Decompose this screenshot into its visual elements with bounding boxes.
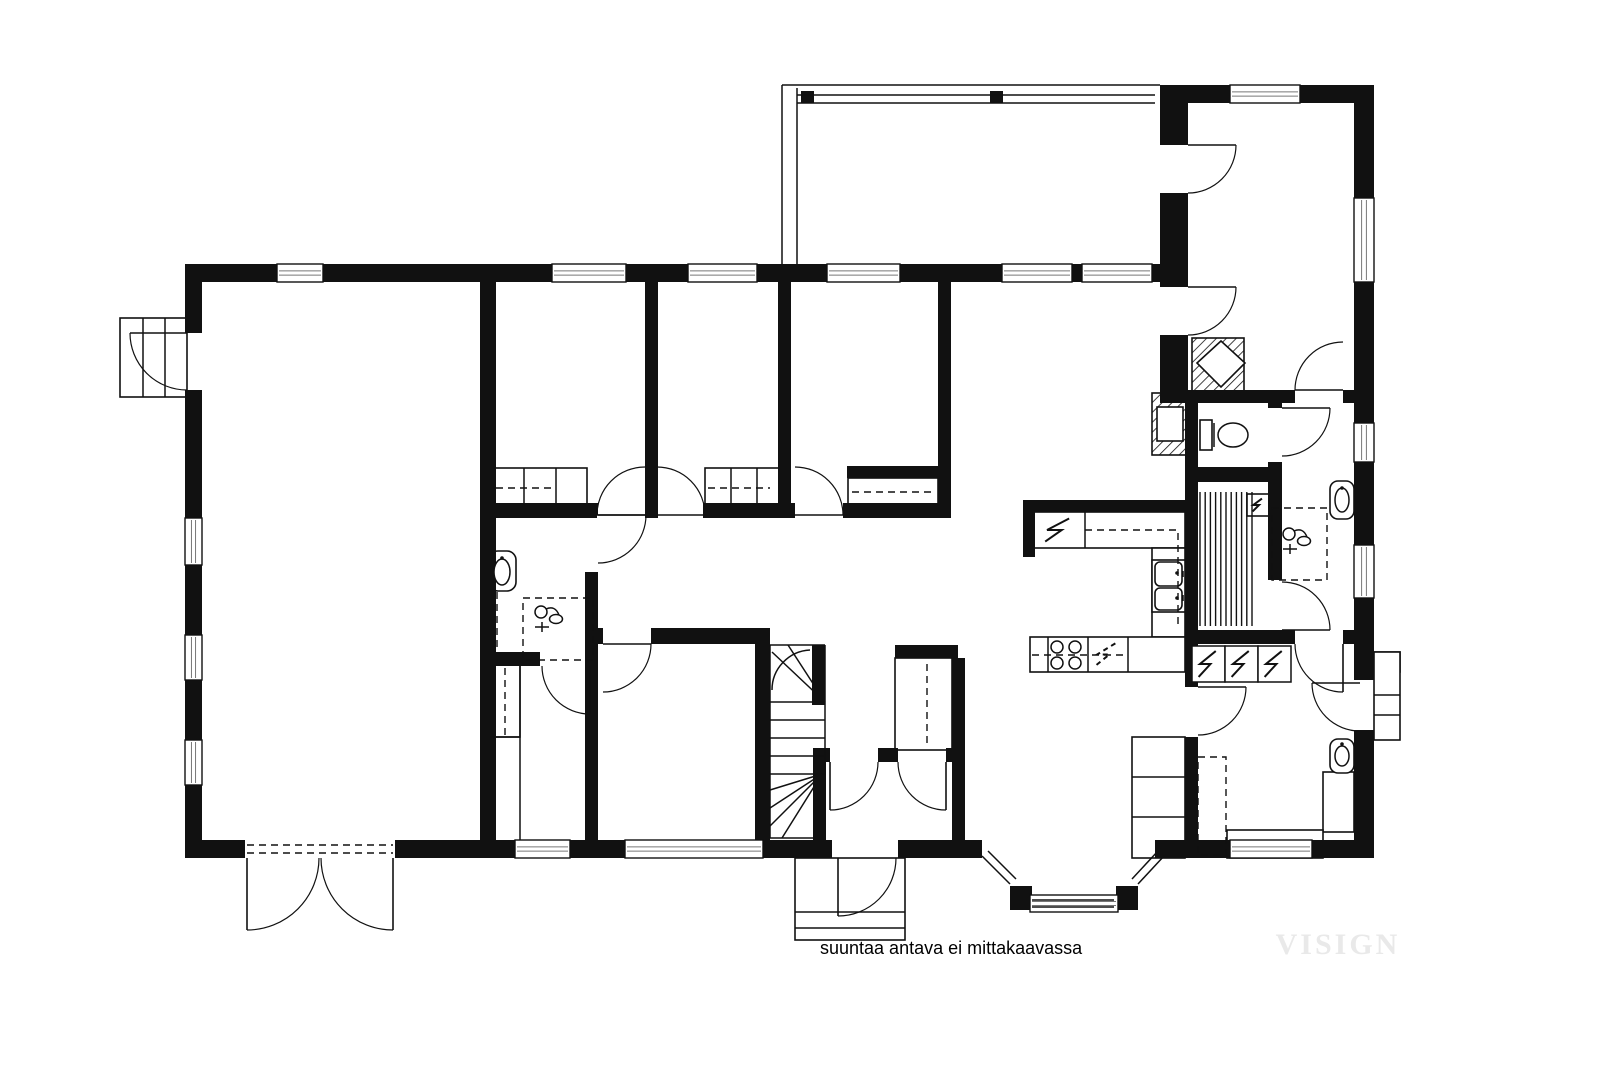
dashed-zone <box>523 598 593 660</box>
window <box>185 635 202 680</box>
wall <box>1185 737 1198 858</box>
window <box>1354 545 1374 598</box>
wall <box>878 748 898 762</box>
fixture-bowl-icon <box>494 559 510 585</box>
wall <box>1023 500 1035 557</box>
wall <box>1268 390 1282 408</box>
wall <box>585 652 598 858</box>
wall <box>1354 85 1374 198</box>
fixture-rect <box>120 318 187 397</box>
window <box>1354 198 1374 282</box>
fixture-bowl-icon <box>1218 423 1248 447</box>
door-swing <box>1295 644 1343 692</box>
wall <box>847 466 940 478</box>
wall <box>1343 390 1374 403</box>
wall <box>1023 500 1188 512</box>
shower-mixer-icon <box>535 606 547 618</box>
door-swing <box>1282 582 1330 630</box>
wall <box>1198 630 1268 644</box>
door-swing <box>795 467 843 515</box>
wall <box>895 645 958 658</box>
door-swing <box>321 858 393 930</box>
faucet-dot-icon <box>1175 596 1179 600</box>
wall <box>1160 193 1188 287</box>
faucet-dot-icon <box>1340 486 1344 490</box>
cooktop-burner-icon <box>1069 641 1081 653</box>
wall <box>1160 85 1188 145</box>
wall <box>946 748 958 762</box>
door-swing <box>597 467 645 515</box>
door-swing <box>657 467 705 515</box>
wall <box>1354 462 1374 545</box>
cooktop-burner-icon <box>1069 657 1081 669</box>
door-swing <box>1188 287 1236 335</box>
cooktop-burner-icon <box>1051 641 1063 653</box>
window <box>625 840 763 858</box>
plan-line <box>982 856 1010 884</box>
wall <box>645 282 658 518</box>
wall <box>813 748 826 858</box>
visign-watermark: VISIGN <box>1258 928 1418 962</box>
floor-plan-page: suuntaa antava ei mittakaavassa VISIGN <box>0 0 1600 1067</box>
faucet-dot-icon <box>1175 571 1179 575</box>
fixture-rect <box>895 658 952 750</box>
window <box>1002 264 1072 282</box>
door-swing <box>603 644 651 692</box>
window <box>1230 85 1300 103</box>
plan-line <box>1138 856 1164 884</box>
fixture-rect <box>1157 407 1183 441</box>
door-swing <box>1295 342 1343 390</box>
door-swing <box>247 858 319 930</box>
wall <box>898 840 982 858</box>
window <box>827 264 900 282</box>
wall <box>755 628 770 858</box>
faucet-dot-icon <box>500 556 504 560</box>
window <box>1230 840 1312 858</box>
fixture-bowl-icon <box>1335 488 1349 512</box>
floor-plan-svg <box>0 0 1600 1067</box>
wall <box>1198 467 1282 482</box>
wall <box>778 282 791 518</box>
wall <box>822 748 830 762</box>
door-swing <box>1312 683 1360 731</box>
window <box>688 264 757 282</box>
wall <box>757 264 827 282</box>
wall <box>585 572 598 655</box>
wall <box>1116 886 1138 910</box>
wall <box>626 264 688 282</box>
faucet-dot-icon <box>1340 742 1344 746</box>
wall <box>1010 886 1032 910</box>
wall <box>185 565 202 635</box>
wall <box>1268 480 1282 580</box>
plan-line <box>988 851 1016 879</box>
window <box>185 518 202 565</box>
door-swing <box>1188 145 1236 193</box>
door-swing <box>598 515 646 563</box>
wall <box>395 840 515 858</box>
wall <box>185 680 202 740</box>
wall <box>185 264 202 333</box>
door-swing <box>830 762 878 810</box>
wall <box>1268 630 1295 644</box>
wall <box>323 264 552 282</box>
wall <box>900 264 1002 282</box>
wall <box>1072 264 1082 282</box>
scale-note-text: suuntaa antava ei mittakaavassa <box>820 938 1120 959</box>
door-swing <box>1282 408 1330 456</box>
window <box>185 740 202 785</box>
window <box>515 840 570 858</box>
floor-plan <box>0 0 1600 1067</box>
wall <box>1343 630 1374 644</box>
wall <box>843 503 951 518</box>
fixture-rect <box>1200 420 1212 450</box>
wall <box>1354 730 1374 858</box>
fixture-bowl-icon <box>1335 746 1349 766</box>
wall <box>651 628 768 644</box>
fixture-rect <box>1132 737 1185 858</box>
wall <box>990 91 1003 103</box>
door-swing <box>1198 687 1246 735</box>
wall <box>801 91 814 103</box>
wall <box>185 390 202 518</box>
door-swing <box>542 666 590 714</box>
wall <box>938 282 951 518</box>
cooktop-burner-icon <box>1051 657 1063 669</box>
wall <box>645 503 657 518</box>
shower-mixer-icon <box>1298 537 1311 546</box>
fixture-rect <box>492 468 587 505</box>
window <box>1082 264 1152 282</box>
shower-mixer-icon <box>1283 528 1295 540</box>
wall <box>703 503 795 518</box>
shower-mixer-icon <box>550 615 563 624</box>
wall <box>480 503 597 518</box>
fixture-rect <box>705 468 782 505</box>
wall <box>598 628 603 644</box>
window <box>1030 895 1118 912</box>
wall <box>1160 335 1188 403</box>
window <box>277 264 323 282</box>
wall <box>1185 395 1198 687</box>
wall <box>185 840 245 858</box>
window <box>1354 423 1374 462</box>
fixture-rect <box>1323 772 1354 832</box>
fixture-rect <box>1374 652 1400 740</box>
window <box>552 264 626 282</box>
wall <box>480 652 540 666</box>
wall <box>585 503 598 515</box>
door-swing <box>898 762 946 810</box>
